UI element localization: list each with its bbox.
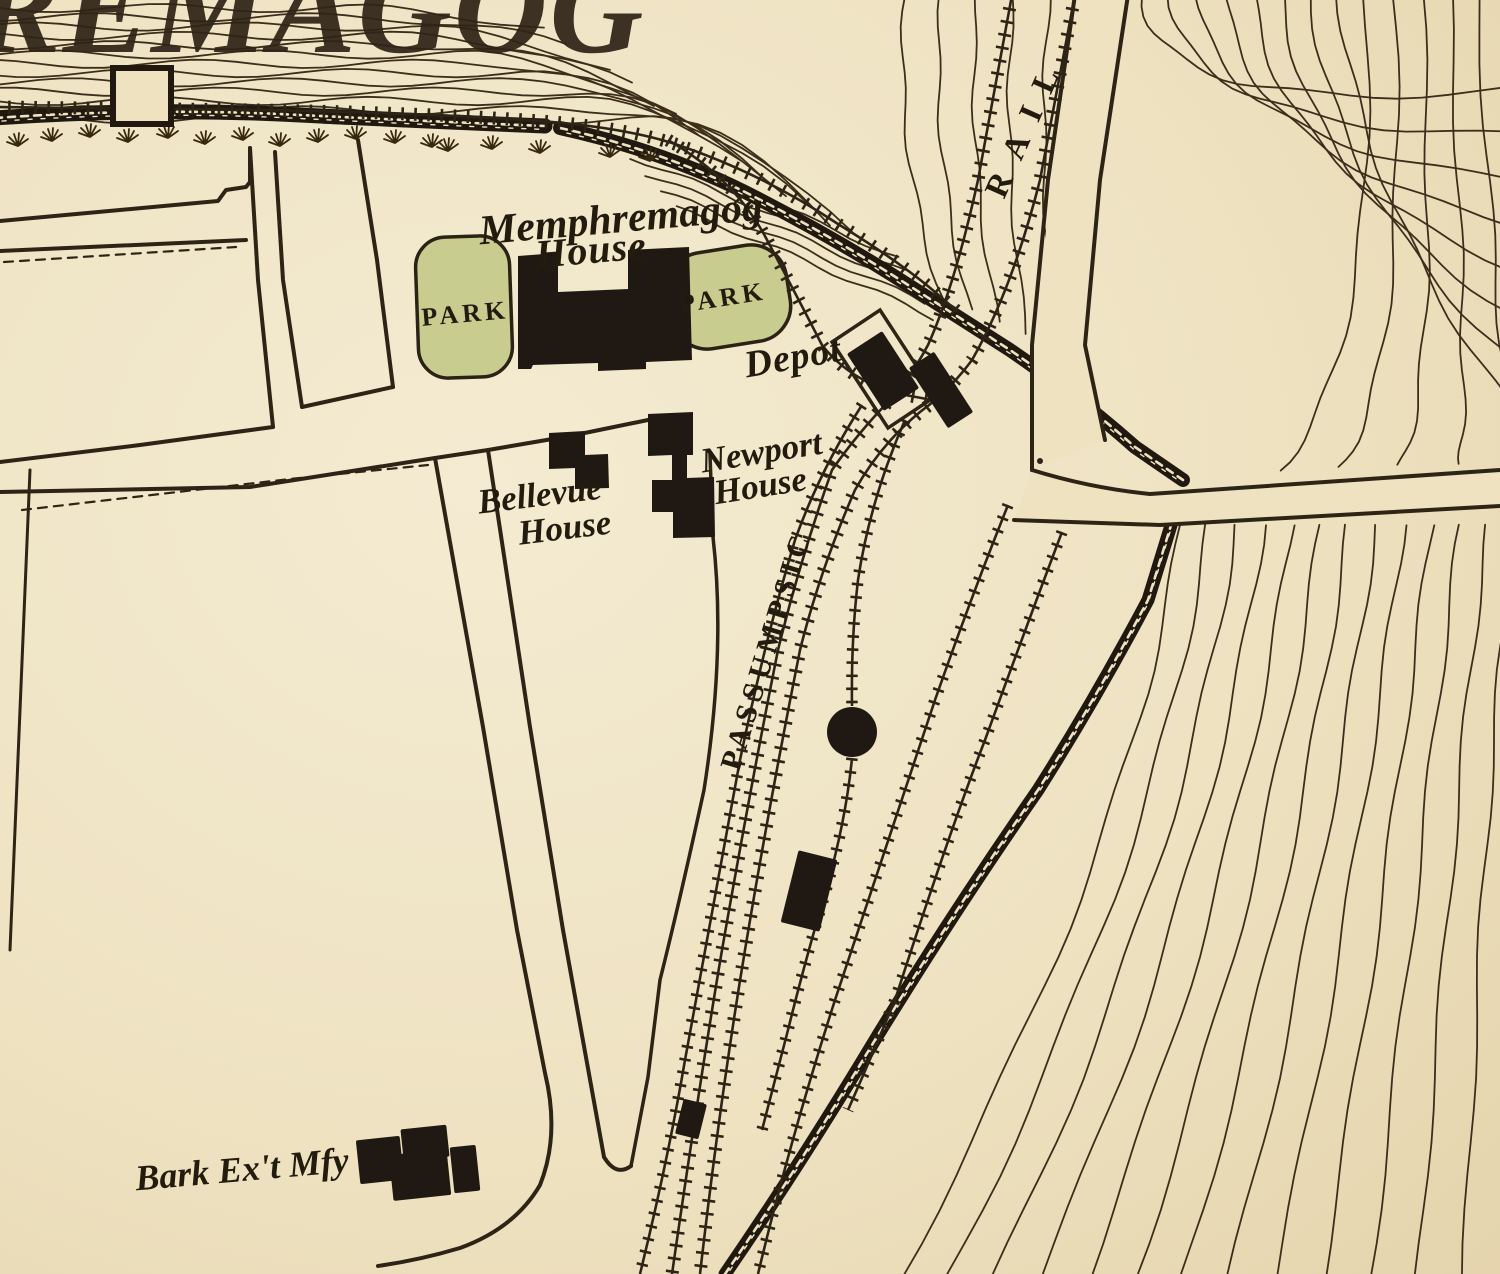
- lake-name-fragment: REMAGOG: [0, 0, 645, 81]
- survey-dot: [1037, 458, 1043, 464]
- turntable: [827, 707, 877, 757]
- bark-mill-d: [450, 1145, 481, 1193]
- antique-town-map[interactable]: REMAGOGMemphremagogHouseDepotNewportHous…: [0, 0, 1500, 1274]
- bark-mill-c: [389, 1149, 451, 1201]
- map-canvas[interactable]: REMAGOGMemphremagogHouseDepotNewportHous…: [0, 0, 1500, 1274]
- wharf: [113, 68, 171, 124]
